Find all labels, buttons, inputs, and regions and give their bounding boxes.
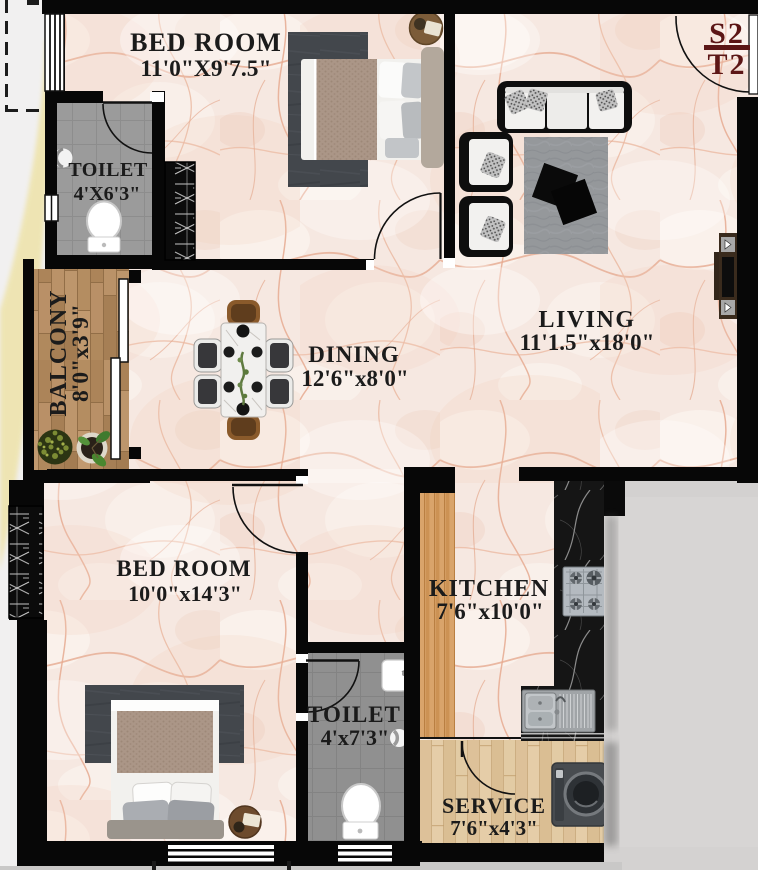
svg-text:BED ROOM: BED ROOM [130,28,282,57]
svg-text:TOILET: TOILET [68,159,147,181]
svg-text:4'X6'3": 4'X6'3" [74,183,141,205]
svg-text:11'0"X9'7.5": 11'0"X9'7.5" [140,56,271,82]
svg-text:T2: T2 [707,48,746,81]
svg-text:8'0"x3'9": 8'0"x3'9" [68,304,94,402]
svg-text:12'6"x8'0": 12'6"x8'0" [301,366,408,391]
svg-text:TOILET: TOILET [307,702,401,727]
svg-text:SERVICE: SERVICE [442,793,546,818]
svg-text:10'0"x14'3": 10'0"x14'3" [128,581,242,606]
svg-text:BED ROOM: BED ROOM [116,556,251,581]
svg-text:DINING: DINING [308,342,400,367]
svg-text:7'6"x4'3": 7'6"x4'3" [450,816,538,840]
svg-text:11'1.5"x18'0": 11'1.5"x18'0" [520,330,655,355]
svg-text:7'6"x10'0": 7'6"x10'0" [436,599,543,624]
svg-text:4'x7'3": 4'x7'3" [321,725,389,750]
